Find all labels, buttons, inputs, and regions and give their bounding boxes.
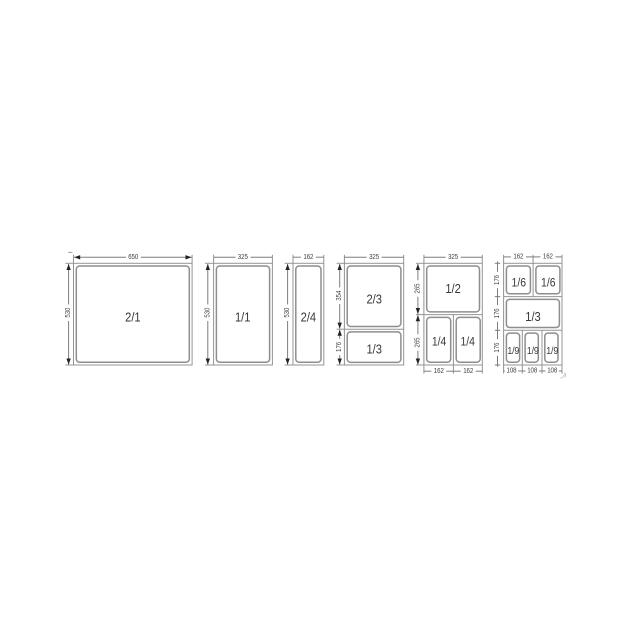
svg-text:176: 176 [494, 275, 501, 285]
svg-text:1/4: 1/4 [460, 337, 475, 349]
svg-text:162: 162 [543, 254, 553, 261]
svg-text:530: 530 [284, 307, 291, 317]
svg-text:2/4: 2/4 [301, 311, 317, 325]
svg-text:265: 265 [414, 283, 421, 293]
svg-text:354: 354 [336, 291, 343, 301]
svg-text:162: 162 [303, 254, 313, 261]
svg-text:162: 162 [513, 254, 523, 261]
svg-text:1/9: 1/9 [527, 346, 539, 357]
svg-text:108: 108 [547, 368, 557, 375]
svg-text:1/2: 1/2 [445, 282, 461, 296]
svg-text:176: 176 [494, 308, 501, 318]
svg-text:1/6: 1/6 [541, 277, 556, 289]
svg-text:2/3: 2/3 [366, 293, 382, 307]
svg-text:265: 265 [414, 337, 421, 347]
svg-text:325: 325 [448, 254, 458, 261]
svg-text:530: 530 [204, 307, 211, 317]
svg-text:1/1: 1/1 [235, 311, 251, 325]
svg-text:530: 530 [65, 307, 72, 317]
svg-text:1/9: 1/9 [546, 346, 558, 357]
svg-text:108: 108 [507, 368, 517, 375]
svg-text:1/3: 1/3 [525, 310, 541, 324]
svg-text:1/4: 1/4 [432, 337, 447, 349]
svg-text:108: 108 [527, 368, 537, 375]
svg-text:162: 162 [434, 368, 444, 375]
svg-text:650: 650 [128, 254, 138, 261]
svg-text:1/6: 1/6 [512, 277, 527, 289]
svg-text:1/9: 1/9 [507, 346, 519, 357]
svg-text:176: 176 [494, 342, 501, 352]
svg-text:325: 325 [238, 254, 248, 261]
svg-text:1/3: 1/3 [366, 343, 382, 357]
svg-text:176: 176 [336, 342, 343, 352]
svg-text:325: 325 [369, 254, 379, 261]
svg-text:2/1: 2/1 [125, 311, 141, 325]
svg-text:162: 162 [463, 368, 473, 375]
